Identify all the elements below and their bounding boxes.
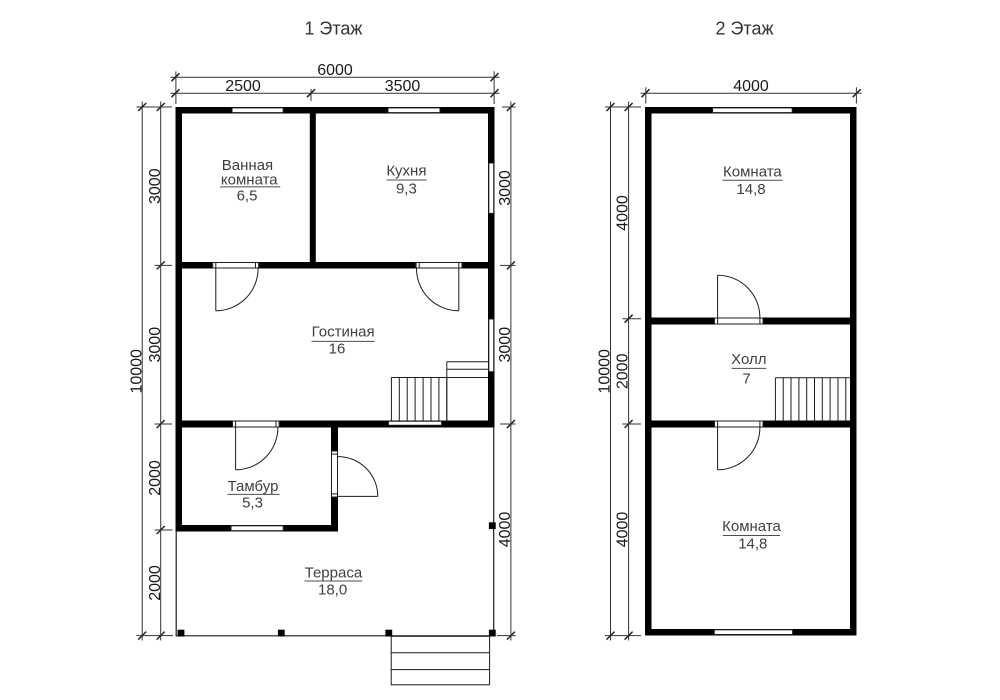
svg-text:3000: 3000 bbox=[147, 168, 164, 204]
svg-text:6,5: 6,5 bbox=[237, 188, 258, 205]
svg-text:Комната: Комната bbox=[723, 163, 782, 180]
svg-text:2 Этаж: 2 Этаж bbox=[715, 19, 773, 39]
svg-text:Кухня: Кухня bbox=[386, 163, 426, 180]
svg-text:3000: 3000 bbox=[497, 327, 514, 363]
svg-text:2000: 2000 bbox=[147, 460, 164, 496]
svg-text:Холл: Холл bbox=[731, 351, 766, 368]
svg-text:Терраса: Терраса bbox=[305, 564, 363, 581]
svg-text:комната: комната bbox=[221, 171, 278, 188]
svg-text:7: 7 bbox=[742, 370, 750, 387]
svg-text:14,8: 14,8 bbox=[736, 181, 765, 198]
svg-text:5,3: 5,3 bbox=[242, 495, 263, 512]
svg-text:6000: 6000 bbox=[317, 62, 353, 79]
svg-text:9,3: 9,3 bbox=[396, 181, 417, 198]
svg-text:3500: 3500 bbox=[385, 78, 421, 95]
svg-text:2000: 2000 bbox=[615, 353, 632, 389]
svg-text:4000: 4000 bbox=[615, 512, 632, 548]
svg-text:Тамбур: Тамбур bbox=[228, 478, 279, 495]
svg-text:10000: 10000 bbox=[128, 349, 145, 394]
svg-text:10000: 10000 bbox=[597, 349, 614, 394]
svg-text:18,0: 18,0 bbox=[318, 581, 347, 598]
svg-text:4000: 4000 bbox=[615, 195, 632, 231]
svg-text:14,8: 14,8 bbox=[738, 535, 767, 552]
svg-text:16: 16 bbox=[329, 341, 346, 358]
svg-text:2000: 2000 bbox=[147, 565, 164, 601]
svg-text:1 Этаж: 1 Этаж bbox=[304, 19, 362, 39]
svg-text:4000: 4000 bbox=[733, 78, 769, 95]
svg-text:2500: 2500 bbox=[225, 78, 261, 95]
svg-text:3000: 3000 bbox=[147, 327, 164, 363]
svg-text:4000: 4000 bbox=[497, 512, 514, 548]
svg-text:Гостиная: Гостиная bbox=[312, 324, 375, 341]
svg-text:3000: 3000 bbox=[497, 170, 514, 206]
svg-text:Комната: Комната bbox=[722, 518, 781, 535]
